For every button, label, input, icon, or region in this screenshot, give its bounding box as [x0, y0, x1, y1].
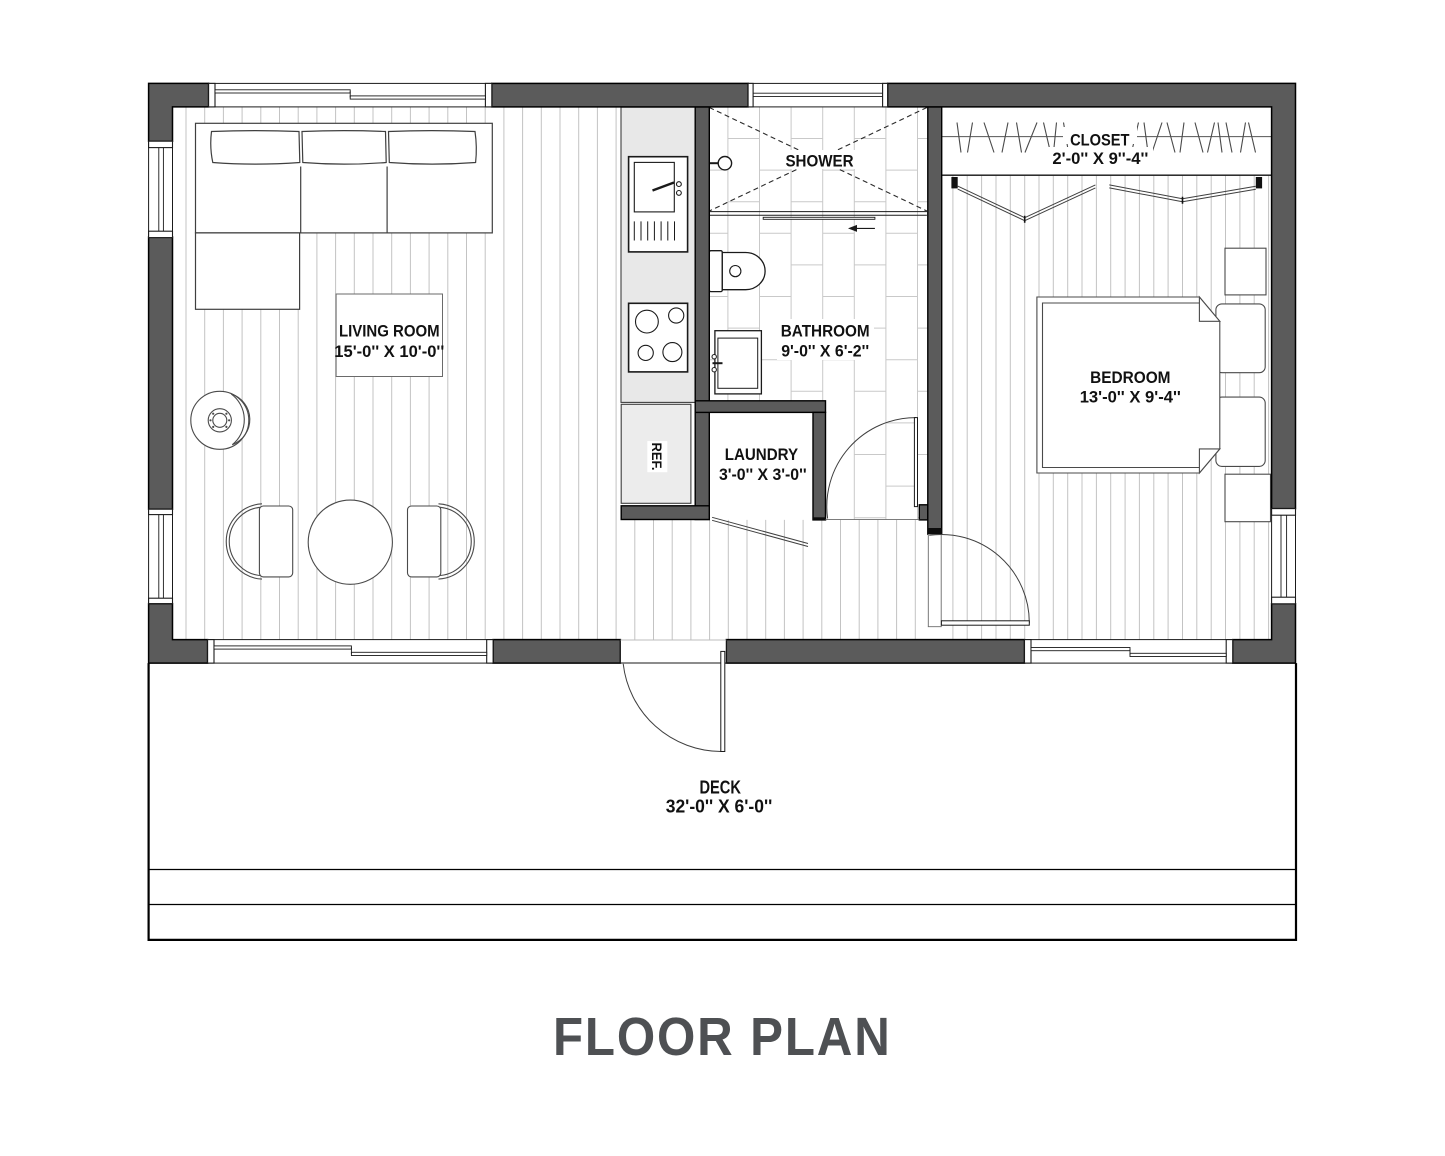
svg-text:BATHROOM: BATHROOM: [781, 322, 870, 341]
svg-text:2'-0'' X 9''-4'': 2'-0'' X 9''-4'': [1052, 149, 1148, 168]
svg-text:13'-0'' X 9'-4'': 13'-0'' X 9'-4'': [1080, 387, 1181, 406]
svg-text:BEDROOM: BEDROOM: [1090, 368, 1170, 387]
svg-text:FLOOR PLAN: FLOOR PLAN: [553, 1008, 892, 1067]
svg-text:SHOWER: SHOWER: [785, 151, 853, 170]
svg-text:REF.: REF.: [649, 443, 664, 471]
svg-text:9'-0'' X 6'-2'': 9'-0'' X 6'-2'': [781, 342, 869, 361]
svg-text:LAUNDRY: LAUNDRY: [725, 445, 798, 464]
svg-text:15'-0'' X 10'-0'': 15'-0'' X 10'-0'': [334, 342, 444, 361]
svg-text:LIVING ROOM: LIVING ROOM: [339, 322, 440, 341]
svg-text:3'-0'' X 3'-0'': 3'-0'' X 3'-0'': [719, 465, 807, 484]
svg-text:32'-0'' X 6'-0'': 32'-0'' X 6'-0'': [666, 797, 773, 817]
svg-text:DECK: DECK: [699, 778, 741, 798]
svg-text:CLOSET: CLOSET: [1070, 130, 1130, 149]
